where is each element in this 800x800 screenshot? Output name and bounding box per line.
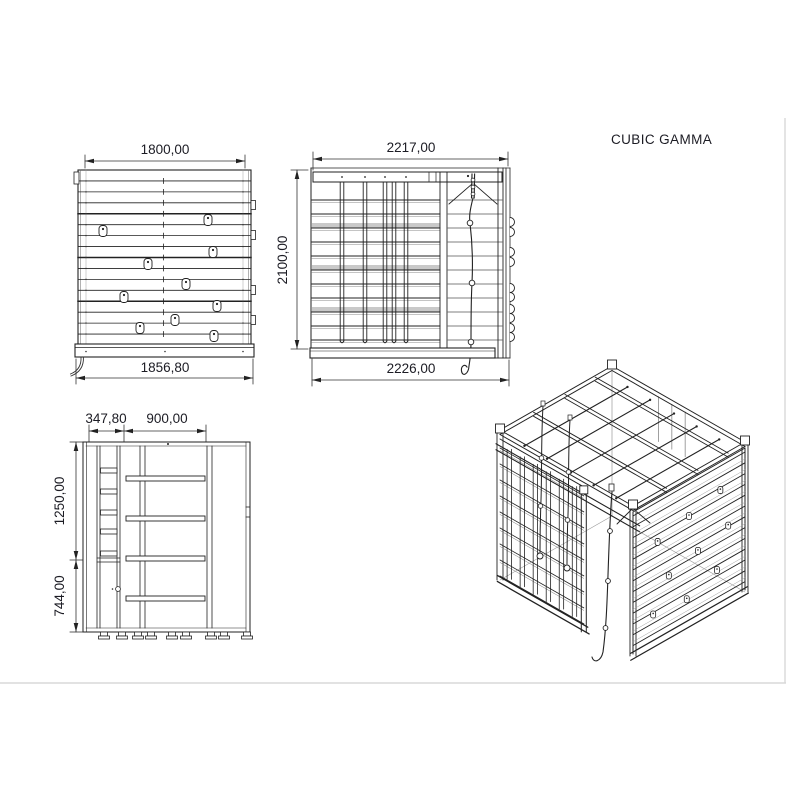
rope-ring — [564, 565, 570, 571]
iso-hold-bolt — [716, 568, 718, 570]
iso-lattice-rung — [500, 496, 584, 544]
isometric-view — [496, 360, 750, 661]
rope-knot — [468, 339, 474, 345]
rear-hold-bump — [510, 228, 515, 237]
front-screw — [85, 180, 86, 181]
rear-dim-top-label: 2217,00 — [387, 140, 436, 155]
iso-hold-bolt — [668, 574, 670, 576]
climbing-hold — [209, 247, 217, 258]
hold-bolt — [174, 317, 176, 319]
front-screw — [85, 202, 86, 203]
rear-dim-bottom: 2226,00 — [312, 359, 509, 386]
iso-slat-line — [633, 528, 745, 592]
front-edge-hold — [251, 231, 256, 240]
climbing-hold — [120, 292, 128, 303]
front-screw — [85, 246, 86, 247]
front-screw — [85, 257, 86, 258]
iso-top-beam — [633, 442, 745, 506]
climbing-hold — [210, 331, 218, 342]
iso-slat-border — [633, 448, 745, 512]
front-screw — [242, 322, 243, 323]
arrow-left-icon — [76, 376, 85, 381]
rope-knot — [538, 504, 543, 509]
arrow-left-icon — [312, 378, 321, 383]
arrow-down-icon — [74, 623, 79, 632]
iso-hold-bolt — [697, 549, 699, 551]
iso-hold-bolt — [652, 613, 654, 615]
rope-knot — [608, 529, 613, 534]
plan-foot — [208, 632, 215, 636]
iso-hold-bolt — [688, 514, 690, 516]
arrow-left-icon — [85, 159, 94, 164]
iso-back-frame — [500, 370, 745, 592]
front-screw — [242, 191, 243, 192]
front-screw — [242, 213, 243, 214]
iso-slat-line — [633, 549, 745, 613]
rope-knot — [539, 456, 544, 461]
rear-vertical-bars — [340, 182, 408, 343]
rope-knot — [565, 518, 570, 523]
plan-foot-base — [206, 636, 217, 639]
front-screw — [242, 257, 243, 258]
front-screw — [85, 322, 86, 323]
plan-foot — [119, 632, 126, 636]
arrow-right-icon — [244, 376, 253, 381]
front-edge-hold — [251, 201, 256, 210]
rear-dim-top: 2217,00 — [313, 140, 508, 170]
front-dim-top: 1800,00 — [85, 142, 245, 168]
front-screw — [85, 268, 86, 269]
rope-knot — [566, 470, 571, 475]
rear-hold-bump — [510, 248, 515, 257]
rear-hold-bump — [510, 305, 515, 314]
plan-foot — [183, 632, 190, 636]
plan-ladder-rung — [101, 510, 118, 515]
front-screw — [242, 311, 243, 312]
hold-bolt — [216, 303, 218, 305]
rear-base-board — [310, 348, 495, 358]
plan-foot-base — [133, 636, 144, 639]
plan-monkey-rung — [126, 556, 205, 561]
plan-foot-base — [99, 636, 110, 639]
iso-top-beam — [500, 366, 612, 430]
hold-bolt — [147, 261, 149, 263]
front-edge-hold — [251, 316, 256, 325]
front-dim-bottom: 1856,80 — [76, 359, 253, 384]
iso-post-cap — [608, 360, 617, 369]
plan-foot — [148, 632, 155, 636]
plan-dim-depth-lower-label: 744,00 — [52, 575, 67, 616]
climbing-hold — [144, 259, 152, 270]
iso-hold-bolt — [686, 597, 688, 599]
blueprint-canvas: CUBIC GAMMA 1800,00 — [0, 0, 800, 800]
iso-lattice-skid — [497, 575, 587, 627]
rear-dim-bottom-label: 2226,00 — [387, 361, 436, 376]
rope-knot — [606, 579, 611, 584]
iso-post-cap — [741, 436, 750, 445]
hold-bolt — [213, 333, 215, 335]
iso-climbing-hold — [687, 513, 692, 520]
plan-foot-base — [167, 636, 178, 639]
hold-bolt — [212, 249, 214, 251]
iso-hold-bolt — [720, 488, 722, 490]
arrow-up-icon — [295, 170, 300, 179]
climbing-hold — [136, 323, 144, 334]
drawing-title: CUBIC GAMMA — [611, 132, 712, 147]
plan-ladder-rung — [101, 489, 118, 494]
hold-bolt — [207, 217, 209, 219]
front-screw — [85, 333, 86, 334]
arrow-right-icon — [197, 429, 206, 434]
hold-bolt — [185, 281, 187, 283]
front-screw — [242, 235, 243, 236]
iso-lattice-rung — [500, 512, 584, 560]
front-screw — [242, 301, 243, 302]
arrow-down-icon — [295, 340, 300, 349]
iso-ground-rail — [500, 516, 612, 580]
climbing-hold — [99, 226, 107, 237]
rear-hold-bump — [510, 258, 515, 267]
iso-top-beam — [612, 366, 745, 442]
arrow-up-icon — [74, 442, 79, 451]
front-screw — [85, 301, 86, 302]
iso-hold-bolt — [657, 540, 659, 542]
drawing-sheet: CUBIC GAMMA 1800,00 — [0, 0, 800, 800]
plan-foot-base — [181, 636, 192, 639]
front-rope — [71, 357, 84, 376]
plan-monkey-rung — [126, 476, 205, 481]
hold-bolt — [123, 294, 125, 296]
front-screw — [242, 202, 243, 203]
plan-view: 347,80 900,00 1250,00 744,00 — [52, 411, 253, 639]
rope-knot — [467, 220, 473, 226]
iso-lattice-rung — [500, 528, 584, 576]
climbing-hold — [213, 301, 221, 312]
iso-slat-line — [633, 582, 745, 646]
iso-climbing-hold — [684, 596, 689, 603]
iso-lattice-wall — [497, 439, 589, 634]
iso-beam-post-cap — [580, 486, 588, 494]
hold-bolt — [102, 228, 104, 230]
rope-knot — [603, 626, 608, 631]
plan-ladder-rung — [101, 551, 118, 556]
front-screw — [242, 180, 243, 181]
front-screw — [85, 235, 86, 236]
front-dim-bottom-label: 1856,80 — [141, 360, 190, 375]
plan-dim-offset-label: 347,80 — [85, 411, 126, 426]
plan-foot-base — [219, 636, 230, 639]
rear-slat-shade — [312, 265, 440, 270]
rear-hold-bump — [510, 293, 515, 302]
front-screw — [242, 224, 243, 225]
plan-foot-base — [242, 636, 253, 639]
front-view: 1800,00 1856,80 — [71, 142, 256, 384]
iso-slat-line — [633, 452, 745, 516]
arrow-down-icon — [74, 551, 79, 560]
rear-hold-bump — [510, 218, 515, 227]
climbing-hold — [182, 279, 190, 290]
rear-hold-bumps — [510, 218, 515, 342]
front-left-tab — [74, 172, 79, 184]
front-screw — [85, 290, 86, 291]
rear-view: 2217,00 2100,00 — [275, 140, 515, 386]
front-screw — [85, 191, 86, 192]
front-screw — [242, 290, 243, 291]
iso-climbing-hold — [726, 522, 731, 529]
climbing-hold — [204, 215, 212, 226]
climbing-hold — [171, 315, 179, 326]
iso-long-beam — [565, 394, 698, 470]
front-screw — [85, 224, 86, 225]
plan-foot — [244, 632, 251, 636]
plan-foot — [221, 632, 228, 636]
rear-slat-shade — [312, 307, 440, 312]
rear-hold-bump — [510, 324, 515, 333]
plan-ladder-rung — [101, 529, 118, 534]
front-edge-hold — [251, 286, 256, 295]
arrow-right-icon — [115, 429, 124, 434]
hold-bolt — [139, 325, 141, 327]
iso-top-grid — [496, 360, 750, 656]
iso-climbing-hold — [718, 487, 723, 494]
arrow-right-icon — [499, 157, 508, 162]
iso-slat-line — [633, 538, 745, 602]
iso-climbing-hold — [666, 572, 671, 579]
front-screw — [85, 311, 86, 312]
rope-knot — [469, 280, 475, 286]
rope-ring — [537, 553, 543, 559]
rear-hold-bump — [510, 284, 515, 293]
plan-dim-depth-upper-label: 1250,00 — [52, 477, 67, 526]
arrow-left-icon — [124, 429, 133, 434]
front-screw — [242, 268, 243, 269]
iso-hold-bolt — [727, 524, 729, 526]
front-screw — [242, 279, 243, 280]
iso-climbing-hold — [651, 611, 656, 618]
arrow-left-icon — [89, 429, 98, 434]
rear-dim-left-label: 2100,00 — [275, 236, 290, 285]
rear-climbing-rope — [461, 174, 474, 374]
plan-ladder-rung — [101, 468, 118, 473]
plan-monkey-rung — [126, 516, 205, 521]
plan-foot-base — [146, 636, 157, 639]
plan-monkey-rung — [126, 596, 205, 601]
plan-fitting — [116, 587, 121, 592]
iso-climbing-hold — [655, 538, 660, 545]
arrow-left-icon — [313, 157, 322, 162]
plan-anchor-feet — [99, 632, 253, 639]
rear-dim-left: 2100,00 — [275, 170, 308, 349]
iso-climbing-hold — [715, 567, 720, 574]
rear-slat-shade — [312, 223, 440, 228]
iso-slat-line — [633, 571, 745, 635]
front-dim-top-label: 1800,00 — [141, 142, 190, 157]
plan-foot — [169, 632, 176, 636]
iso-climbing-hold — [695, 547, 700, 554]
plan-foot — [101, 632, 108, 636]
front-base-board — [75, 344, 254, 357]
arrow-up-icon — [74, 560, 79, 569]
iso-post-cap — [496, 424, 505, 433]
iso-post-cap — [629, 500, 638, 509]
rear-hold-bump — [510, 314, 515, 323]
front-right-tabs — [251, 201, 256, 325]
plan-foot — [135, 632, 142, 636]
rear-hold-bump — [510, 333, 515, 342]
arrow-right-icon — [500, 378, 509, 383]
arrow-right-icon — [236, 159, 245, 164]
iso-long-beam — [595, 377, 728, 453]
front-screw — [85, 213, 86, 214]
front-screw — [85, 279, 86, 280]
plan-foot-base — [117, 636, 128, 639]
front-screw — [242, 246, 243, 247]
iso-slat-line — [633, 560, 745, 624]
front-screw — [242, 333, 243, 334]
plan-dim-span-label: 900,00 — [146, 411, 187, 426]
